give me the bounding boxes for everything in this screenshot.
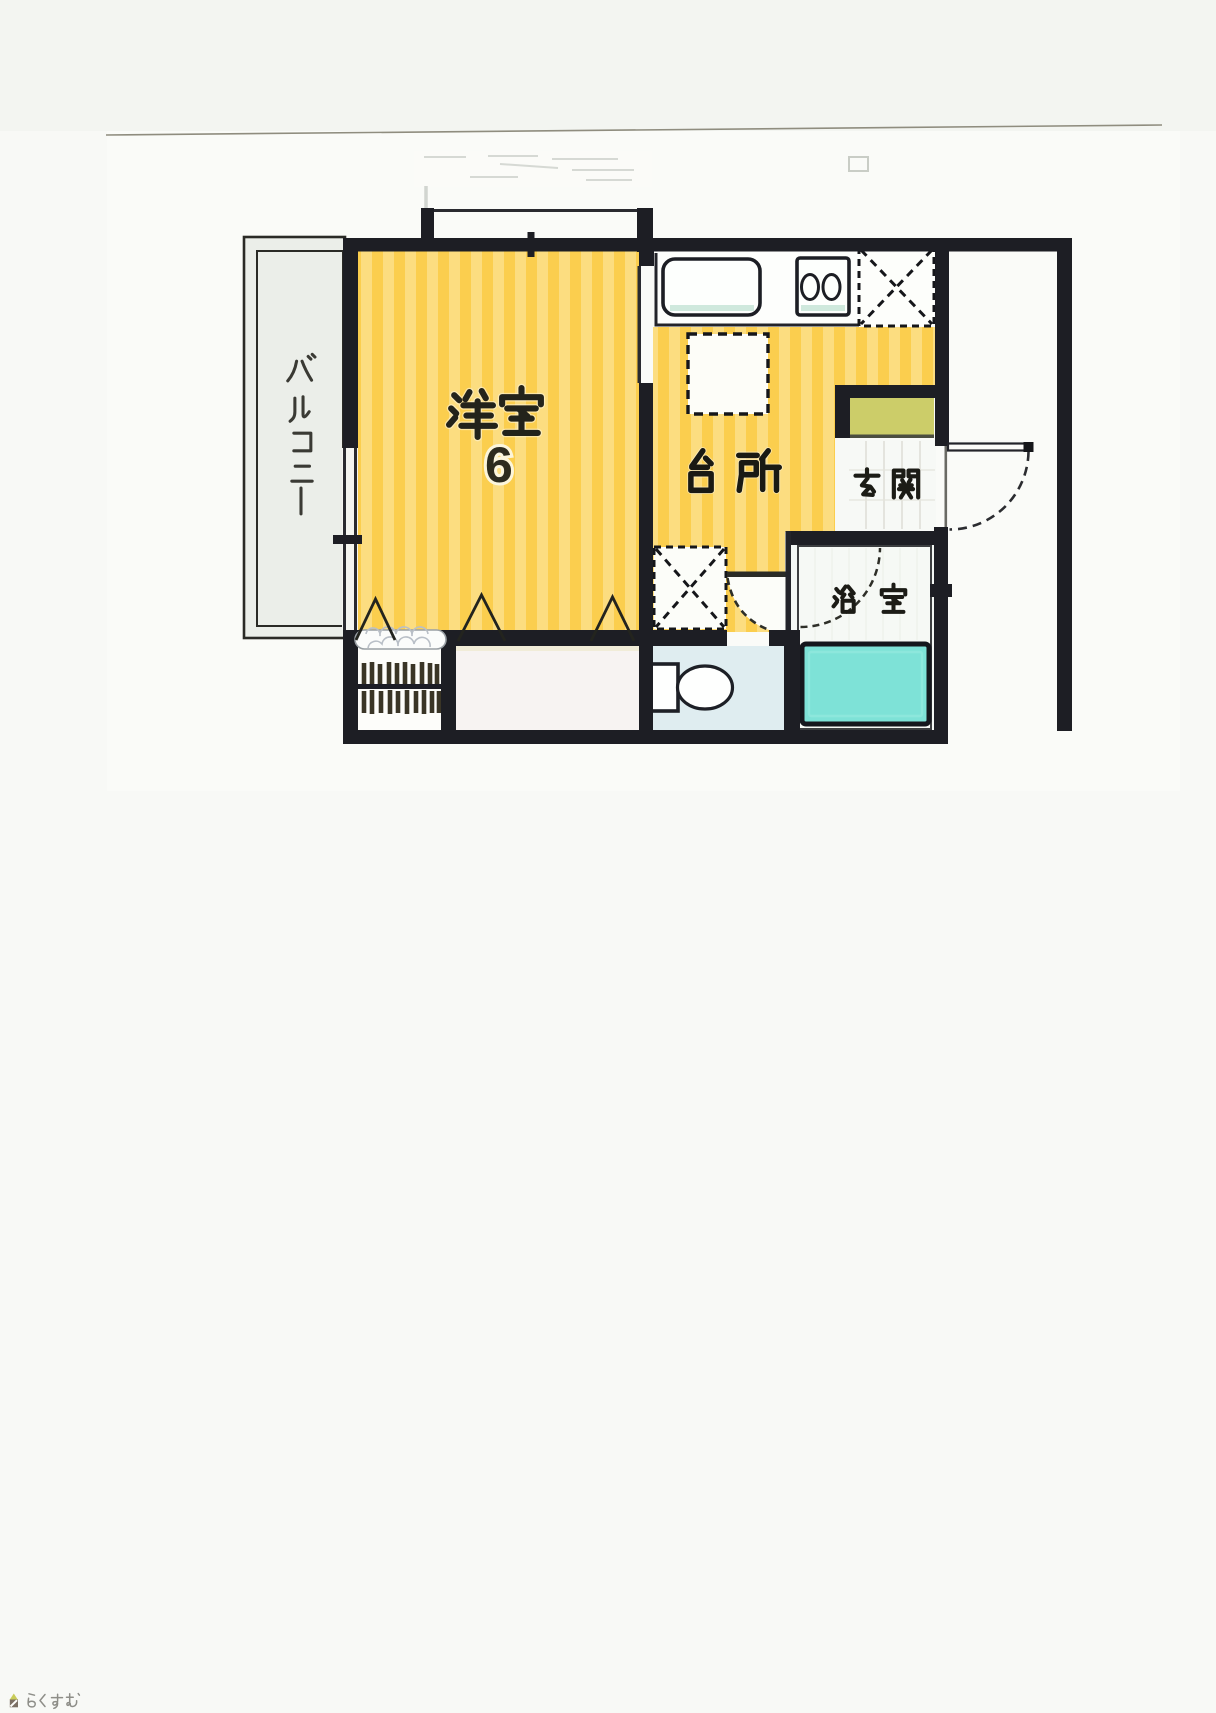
svg-text:6: 6: [485, 437, 513, 493]
